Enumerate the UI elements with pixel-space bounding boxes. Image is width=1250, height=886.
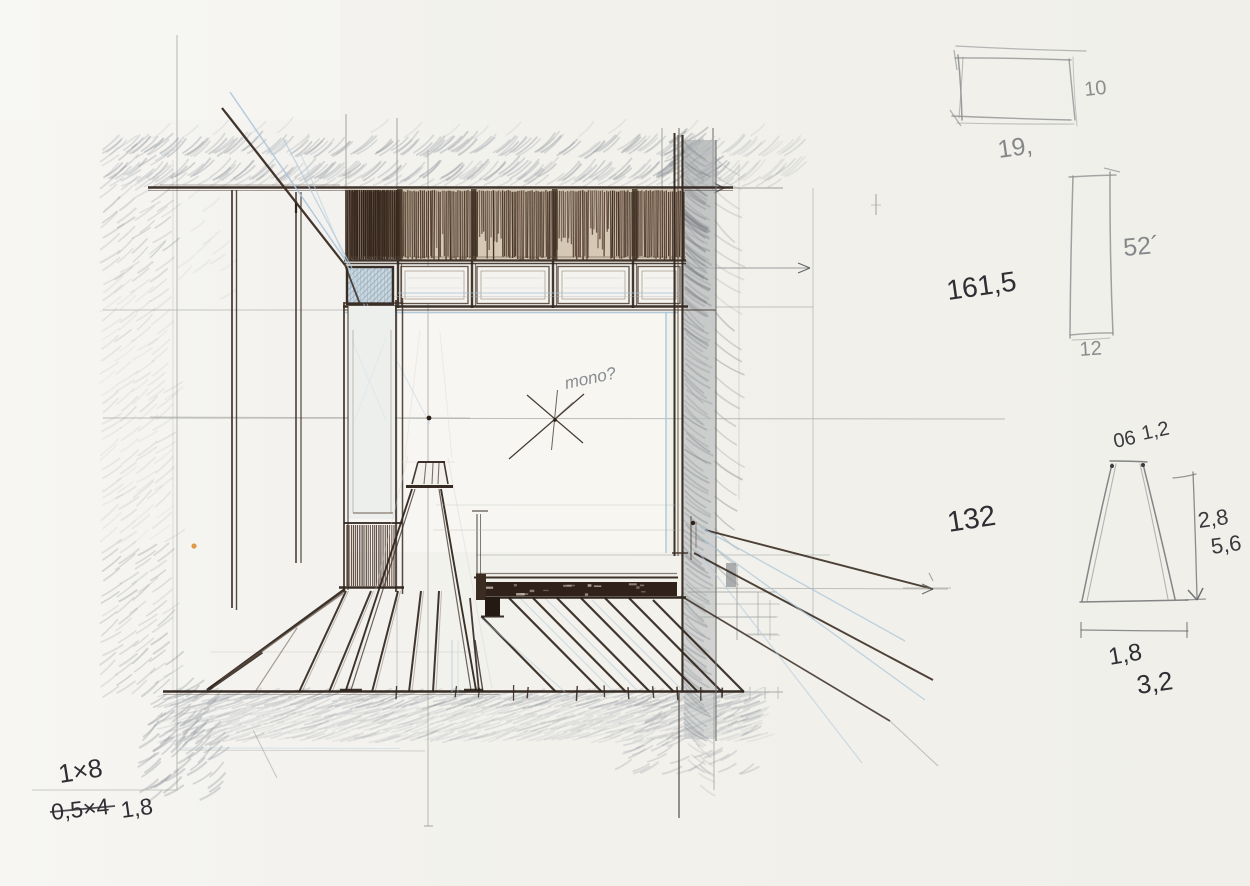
svg-text:06: 06 [1111, 427, 1137, 453]
svg-text:1,8: 1,8 [1106, 639, 1144, 671]
svg-text:5,6: 5,6 [1209, 530, 1243, 559]
svg-text:10: 10 [1083, 77, 1107, 101]
svg-text:12: 12 [1079, 337, 1103, 360]
svg-text:1,8: 1,8 [119, 793, 154, 823]
svg-text:19,: 19, [996, 131, 1034, 164]
svg-text:3,2: 3,2 [1135, 665, 1175, 700]
svg-text:2,8: 2,8 [1196, 504, 1230, 533]
svg-text:52´: 52´ [1122, 231, 1160, 262]
